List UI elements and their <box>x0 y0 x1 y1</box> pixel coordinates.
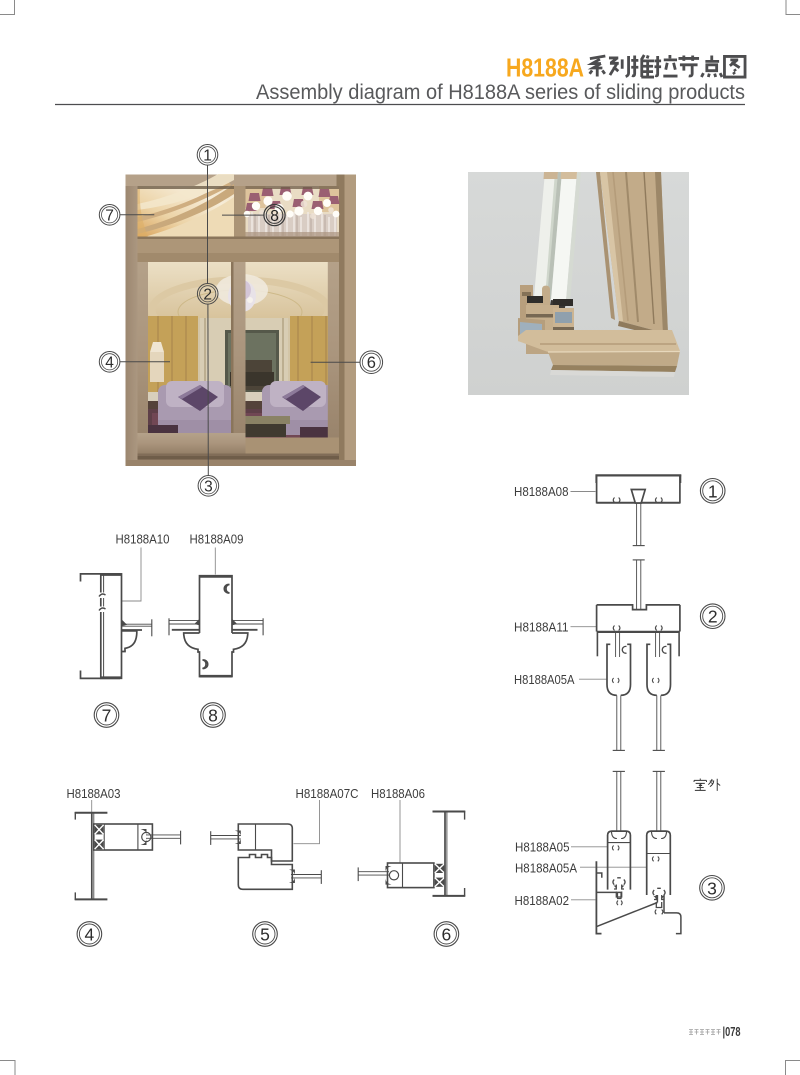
svg-text:Assembly diagram of H8188A ser: Assembly diagram of H8188A series of sli… <box>256 80 745 104</box>
svg-text:H8188A11: H8188A11 <box>514 620 569 635</box>
svg-text:8: 8 <box>208 706 218 726</box>
svg-text:4: 4 <box>105 354 114 371</box>
svg-text:|078: |078 <box>723 1025 741 1039</box>
svg-text:2: 2 <box>203 286 212 303</box>
svg-text:H8188A07C: H8188A07C <box>296 786 359 801</box>
svg-text:6: 6 <box>367 354 376 372</box>
svg-text:H8188A05A: H8188A05A <box>514 672 575 687</box>
svg-text:1: 1 <box>708 481 718 501</box>
svg-text:1: 1 <box>203 147 212 164</box>
svg-text:H8188A03: H8188A03 <box>67 786 121 801</box>
svg-text:3: 3 <box>707 878 717 898</box>
svg-text:H8188A: H8188A <box>506 53 584 83</box>
svg-text:H8188A09: H8188A09 <box>190 532 244 547</box>
svg-text:2: 2 <box>708 607 718 627</box>
svg-text:7: 7 <box>105 207 114 224</box>
svg-text:H8188A05: H8188A05 <box>515 840 570 855</box>
svg-text:6: 6 <box>442 925 452 945</box>
svg-text:H8188A06: H8188A06 <box>371 786 425 801</box>
svg-text:8: 8 <box>270 208 279 225</box>
svg-text:4: 4 <box>85 925 95 945</box>
svg-text:H8188A10: H8188A10 <box>116 532 170 547</box>
svg-text:H8188A08: H8188A08 <box>514 484 569 499</box>
svg-text:7: 7 <box>102 706 112 726</box>
svg-text:H8188A05A: H8188A05A <box>515 861 577 876</box>
svg-text:5: 5 <box>260 925 270 945</box>
svg-text:H8188A02: H8188A02 <box>515 893 570 908</box>
svg-text:3: 3 <box>204 478 213 495</box>
